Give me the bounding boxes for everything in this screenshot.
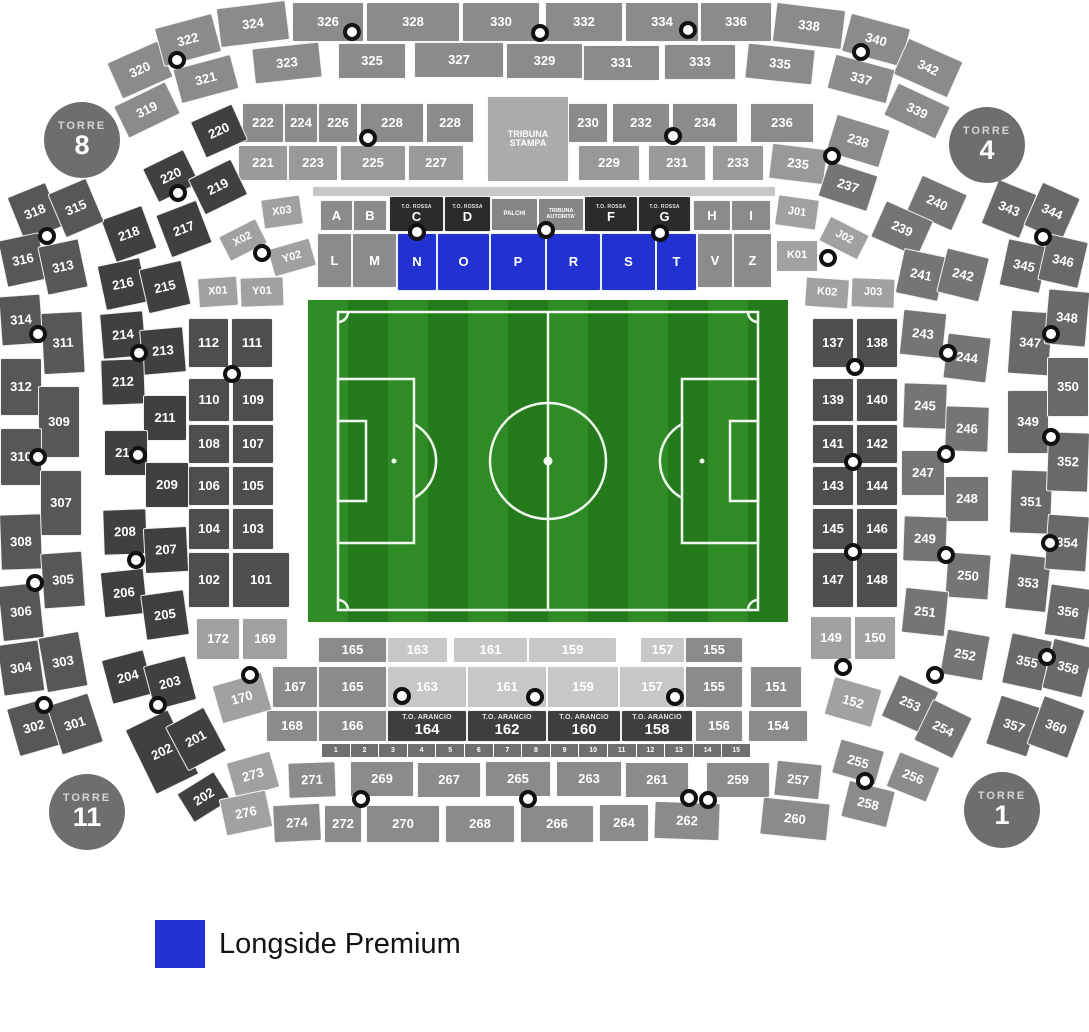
section-328[interactable]: 328 [366,2,460,42]
section-271[interactable]: 271 [287,761,336,799]
section-312[interactable]: 312 [0,358,42,416]
row-number-cell: 7 [494,744,522,757]
section-label: N [412,255,421,269]
section-label: 357 [1002,716,1027,736]
section-108[interactable]: 108 [188,424,230,464]
section-label: 213 [152,343,175,358]
section-label: 161 [496,680,518,694]
torre-8-landmark: TORRE8 [44,102,120,178]
section-225[interactable]: 225 [340,145,406,181]
section-307[interactable]: 307 [40,470,82,536]
section-140[interactable]: 140 [856,378,898,422]
section-154[interactable]: 154 [748,710,808,742]
section-211[interactable]: 211 [143,395,187,441]
section-label: 257 [786,772,809,788]
torre-1-landmark: TORRE1 [964,772,1040,848]
section-267[interactable]: 267 [417,762,481,798]
section-a[interactable]: A [320,200,353,231]
section-label: 322 [176,31,200,50]
section-270[interactable]: 270 [366,805,440,843]
section-k01[interactable]: K01 [776,240,818,272]
section-155[interactable]: 155 [685,666,743,708]
section-236[interactable]: 236 [750,103,814,143]
section-168[interactable]: 168 [266,710,318,742]
section-label: 356 [1056,604,1079,621]
section-349[interactable]: 349 [1007,390,1049,454]
gate-marker-icon [168,51,186,69]
row-number-cell: 1 [322,744,350,757]
section-label: 343 [996,199,1021,220]
section-l[interactable]: L [317,233,352,288]
section-266[interactable]: 266 [520,805,594,843]
section-151[interactable]: 151 [750,666,802,708]
section-156[interactable]: 156 [695,710,743,742]
section-label: 306 [9,604,32,620]
section-325[interactable]: 325 [338,43,406,79]
section-232[interactable]: 232 [612,103,670,143]
section-label: X02 [232,230,255,249]
section-y01[interactable]: Y01 [239,276,284,308]
gate-marker-icon [223,365,241,383]
section-label: 154 [767,719,789,733]
section-label: F [607,210,615,224]
section-o[interactable]: O [437,233,490,291]
section-label: 266 [546,817,568,831]
section-p[interactable]: P [490,233,546,291]
section-label: 214 [112,327,135,342]
section-label: 358 [1056,659,1080,677]
section-label: 254 [930,718,955,740]
gate-marker-icon [519,790,537,808]
section-207[interactable]: 207 [143,526,189,574]
section-228[interactable]: 228 [426,103,474,143]
row-number-cell: 15 [722,744,750,757]
section-d[interactable]: T.O. ROSSAD [444,196,491,232]
section-label: 324 [241,16,264,32]
gate-marker-icon [169,184,187,202]
section-165[interactable]: 165 [318,637,387,663]
torre-number: 8 [74,130,89,161]
section-152[interactable]: 152 [823,676,882,728]
section-248[interactable]: 248 [945,476,989,522]
section-158[interactable]: T.O. ARANCIO158 [621,710,693,742]
section-144[interactable]: 144 [856,466,898,506]
section-label: 165 [342,643,364,657]
section-label: 320 [127,59,152,80]
section-label: 346 [1051,252,1075,270]
gate-marker-icon [834,658,852,676]
section-147[interactable]: 147 [812,552,854,608]
section-label: K02 [817,287,838,300]
section-label: 139 [822,393,844,407]
section-label: 104 [198,522,220,536]
gate-marker-icon [253,244,271,262]
section-163[interactable]: 163 [387,637,448,663]
section-label: 220 [206,120,231,141]
section-label: 260 [783,811,806,827]
section-label: 226 [327,116,349,130]
section-b[interactable]: B [353,200,387,231]
section-165[interactable]: 165 [318,666,387,708]
gate-marker-icon [129,446,147,464]
gate-marker-icon [531,24,549,42]
section-label: 253 [897,693,922,714]
section-329[interactable]: 329 [506,43,583,79]
section-label: 248 [956,492,978,506]
section-label: L [331,254,339,268]
section-242[interactable]: 242 [936,247,990,302]
section-label: 230 [577,116,599,130]
section-167[interactable]: 167 [272,666,318,708]
section-label: 241 [909,266,933,284]
section-label: 146 [866,522,888,536]
gate-marker-icon [1034,228,1052,246]
section-109[interactable]: 109 [232,378,274,422]
section-305[interactable]: 305 [40,551,86,610]
section-101[interactable]: 101 [232,552,290,608]
section-169[interactable]: 169 [242,618,288,660]
section-229[interactable]: 229 [578,145,640,181]
section-350[interactable]: 350 [1047,357,1089,417]
section-label: 201 [183,728,209,750]
torre-number: 1 [994,800,1009,831]
section-336[interactable]: 336 [700,2,772,42]
section-label: 216 [111,275,135,293]
section-label: 149 [820,631,842,645]
section-label: 159 [562,643,584,657]
section-160[interactable]: T.O. ARANCIO160 [547,710,621,742]
section-label: 259 [727,773,749,787]
section-338[interactable]: 338 [772,2,846,50]
section-label: STAMPA [510,139,547,148]
section-150[interactable]: 150 [854,616,896,660]
section-y02[interactable]: Y02 [267,237,317,277]
section-label: 228 [381,116,403,130]
section-212[interactable]: 212 [100,358,146,406]
section-label: 102 [198,573,220,587]
row-number-cell: 13 [665,744,693,757]
section-label: Y01 [252,286,272,298]
section-j03[interactable]: J03 [850,277,895,309]
section-223[interactable]: 223 [288,145,338,181]
row-number-cell: 11 [608,744,636,757]
section-label: 271 [301,773,323,787]
section-252[interactable]: 252 [939,629,990,682]
section-label: 208 [114,525,136,539]
section-138[interactable]: 138 [856,318,898,368]
section-label: 339 [904,100,929,122]
section-356[interactable]: 356 [1044,583,1089,640]
section-label: 158 [644,722,669,738]
section-304[interactable]: 304 [0,639,45,696]
section-164[interactable]: T.O. ARANCIO164 [387,710,467,742]
section-label: 209 [156,478,178,492]
section-103[interactable]: 103 [232,508,274,550]
section-233[interactable]: 233 [712,145,764,181]
section-172[interactable]: 172 [196,618,240,660]
section-r[interactable]: R [546,233,601,291]
section-label: 108 [198,437,220,451]
section-331[interactable]: 331 [583,45,660,81]
legend: Longside Premium [155,920,461,968]
gate-marker-icon [408,223,426,241]
section-label: 224 [290,116,312,130]
section-label: AUTORITA' [546,215,575,221]
section-272[interactable]: 272 [324,805,362,843]
section-label: D [463,210,472,224]
section-143[interactable]: 143 [812,466,854,506]
section-230[interactable]: 230 [568,103,608,143]
section-332[interactable]: 332 [545,2,623,42]
section-label: A [332,209,341,223]
section-209[interactable]: 209 [145,462,189,508]
gate-marker-icon [856,772,874,790]
section-221[interactable]: 221 [238,145,288,181]
section-label: 251 [913,604,936,620]
section-label: 157 [641,680,663,694]
section-159[interactable]: 159 [528,637,617,663]
section-327[interactable]: 327 [414,42,504,78]
section-324[interactable]: 324 [216,0,290,48]
row-number-cell: 3 [379,744,407,757]
section-label: 332 [573,15,595,29]
section-tribuna-stampa[interactable]: TRIBUNASTAMPA [487,96,569,182]
section-label: 160 [571,722,596,738]
gate-marker-icon [679,21,697,39]
section-148[interactable]: 148 [856,552,898,608]
section-label: 145 [822,522,844,536]
section-323[interactable]: 323 [251,42,322,85]
section-m[interactable]: M [352,233,397,288]
section-x01[interactable]: X01 [197,276,239,309]
section-label: 303 [51,653,75,670]
section-205[interactable]: 205 [140,589,190,641]
section-166[interactable]: 166 [318,710,387,742]
row-number-cell: 2 [351,744,379,757]
section-309[interactable]: 309 [38,386,80,458]
section-label: 263 [578,772,600,786]
section-226[interactable]: 226 [318,103,358,143]
section-259[interactable]: 259 [706,762,770,798]
section-label: 312 [10,380,32,394]
section-label: 245 [914,399,936,413]
section-268[interactable]: 268 [445,805,515,843]
section-237[interactable]: 237 [817,160,878,212]
section-label: 207 [155,543,177,558]
section-s[interactable]: S [601,233,656,291]
section-label: 244 [955,350,978,366]
section-222[interactable]: 222 [242,103,284,143]
section-105[interactable]: 105 [232,466,274,506]
section-161[interactable]: 161 [453,637,528,663]
row-number-cell: 12 [637,744,665,757]
section-139[interactable]: 139 [812,378,854,422]
section-224[interactable]: 224 [284,103,318,143]
section-303[interactable]: 303 [37,631,88,693]
gate-marker-icon [699,791,717,809]
section-142[interactable]: 142 [856,424,898,464]
section-label: 315 [63,197,88,218]
section-label: 240 [924,192,949,213]
section-label: 238 [846,131,871,150]
section-label: 168 [281,719,303,733]
gate-marker-icon [1042,428,1060,446]
section-311[interactable]: 311 [40,311,85,375]
section-label: 338 [797,18,820,34]
section-261[interactable]: 261 [625,762,689,798]
gate-marker-icon [666,688,684,706]
section-x03[interactable]: X03 [260,194,304,229]
section-i[interactable]: I [731,200,771,231]
gate-marker-icon [664,127,682,145]
section-label: 110 [199,393,220,407]
section-313[interactable]: 313 [37,238,88,296]
section-159[interactable]: 159 [547,666,619,708]
section-label: 148 [866,573,888,587]
section-263[interactable]: 263 [556,761,622,797]
section-label: 264 [613,816,635,830]
gate-marker-icon [680,789,698,807]
section-label: H [707,209,716,223]
section-label: Y02 [281,249,303,265]
section-label: C [412,210,421,224]
section-110[interactable]: 110 [188,378,230,422]
section-label: 203 [158,674,182,693]
section-label: 106 [198,479,220,493]
section-162[interactable]: T.O. ARANCIO162 [467,710,547,742]
section-label: 243 [911,326,934,342]
section-label: 206 [112,585,135,601]
section-label: 252 [953,646,977,663]
section-335[interactable]: 335 [744,43,815,86]
gate-marker-icon [819,249,837,267]
section-label: 307 [50,496,72,510]
section-label: 172 [207,632,229,646]
section-155[interactable]: 155 [685,637,743,663]
section-label: 163 [407,643,429,657]
section-206[interactable]: 206 [100,568,149,618]
section-label: 234 [694,116,716,130]
section-label: M [369,254,380,268]
section-157[interactable]: 157 [640,637,685,663]
section-label: 142 [866,437,888,451]
section-label: 336 [725,15,747,29]
row-number-cell: 10 [579,744,607,757]
section-label: 261 [646,773,668,787]
section-j01[interactable]: J01 [774,194,820,231]
section-333[interactable]: 333 [664,44,736,80]
section-label: 222 [252,116,274,130]
section-label: 229 [598,156,620,170]
torre-number: 4 [979,135,994,166]
section-label: 219 [205,176,230,198]
section-265[interactable]: 265 [485,761,551,797]
section-h[interactable]: H [693,200,731,231]
section-308[interactable]: 308 [0,513,43,570]
section-231[interactable]: 231 [648,145,706,181]
section-label: 151 [765,680,787,694]
section-330[interactable]: 330 [462,2,540,42]
section-label: 327 [448,53,470,67]
section-label: 204 [116,668,140,687]
section-label: 334 [651,15,673,29]
section-label: 239 [889,218,914,239]
section-106[interactable]: 106 [188,466,230,506]
gate-marker-icon [844,543,862,561]
section-label: 202 [149,741,174,763]
section-264[interactable]: 264 [599,804,649,842]
section-label: P [514,255,523,269]
section-label: PALCHI [504,211,526,217]
section-label: R [569,255,578,269]
section-z[interactable]: Z [733,233,772,288]
section-104[interactable]: 104 [188,508,230,550]
section-label: 141 [822,437,844,451]
section-102[interactable]: 102 [188,552,230,608]
torre-4-landmark: TORRE4 [949,107,1025,183]
section-274[interactable]: 274 [272,803,322,843]
section-label: 329 [534,54,556,68]
gate-marker-icon [35,696,53,714]
section-276[interactable]: 276 [219,789,274,836]
section-149[interactable]: 149 [810,616,852,660]
section-235[interactable]: 235 [768,143,828,186]
gate-marker-icon [846,358,864,376]
section-label: 304 [9,660,32,677]
section-257[interactable]: 257 [773,760,823,801]
gate-marker-icon [537,221,555,239]
gate-marker-icon [844,453,862,471]
gate-marker-icon [1042,325,1060,343]
section-251[interactable]: 251 [901,587,950,637]
section-208[interactable]: 208 [102,508,148,556]
section-260[interactable]: 260 [759,797,831,842]
section-107[interactable]: 107 [232,424,274,464]
section-n[interactable]: N [397,233,437,291]
section-label: 218 [116,224,141,244]
section-label: 161 [480,643,502,657]
section-label: 155 [703,680,725,694]
section-112[interactable]: 112 [188,318,229,368]
section-label: 309 [48,415,70,429]
gate-marker-icon [29,325,47,343]
section-f[interactable]: T.O. ROSSAF [584,196,638,232]
section-label: 258 [856,795,880,813]
section-label: 330 [490,15,512,29]
section-palchi[interactable]: PALCHI [491,198,538,231]
section-v[interactable]: V [697,233,733,288]
legend-label: Longside Premium [219,928,461,961]
section-245[interactable]: 245 [902,382,948,430]
section-218[interactable]: 218 [100,205,157,263]
section-label: 360 [1043,717,1068,737]
row-number-cell: 9 [551,744,579,757]
section-label: 269 [371,772,393,786]
section-label: 152 [841,692,866,711]
section-k02[interactable]: K02 [804,277,850,310]
section-label: 276 [234,804,258,822]
section-146[interactable]: 146 [856,508,898,550]
section-111[interactable]: 111 [231,318,273,368]
section-label: 319 [134,99,159,121]
section-label: 228 [439,116,461,130]
section-label: 217 [171,219,196,240]
section-227[interactable]: 227 [408,145,464,181]
section-label: 325 [361,54,383,68]
section-label: 256 [900,767,925,788]
gate-number-strip: 123456789101112131415 [322,744,750,757]
section-215[interactable]: 215 [138,260,191,315]
